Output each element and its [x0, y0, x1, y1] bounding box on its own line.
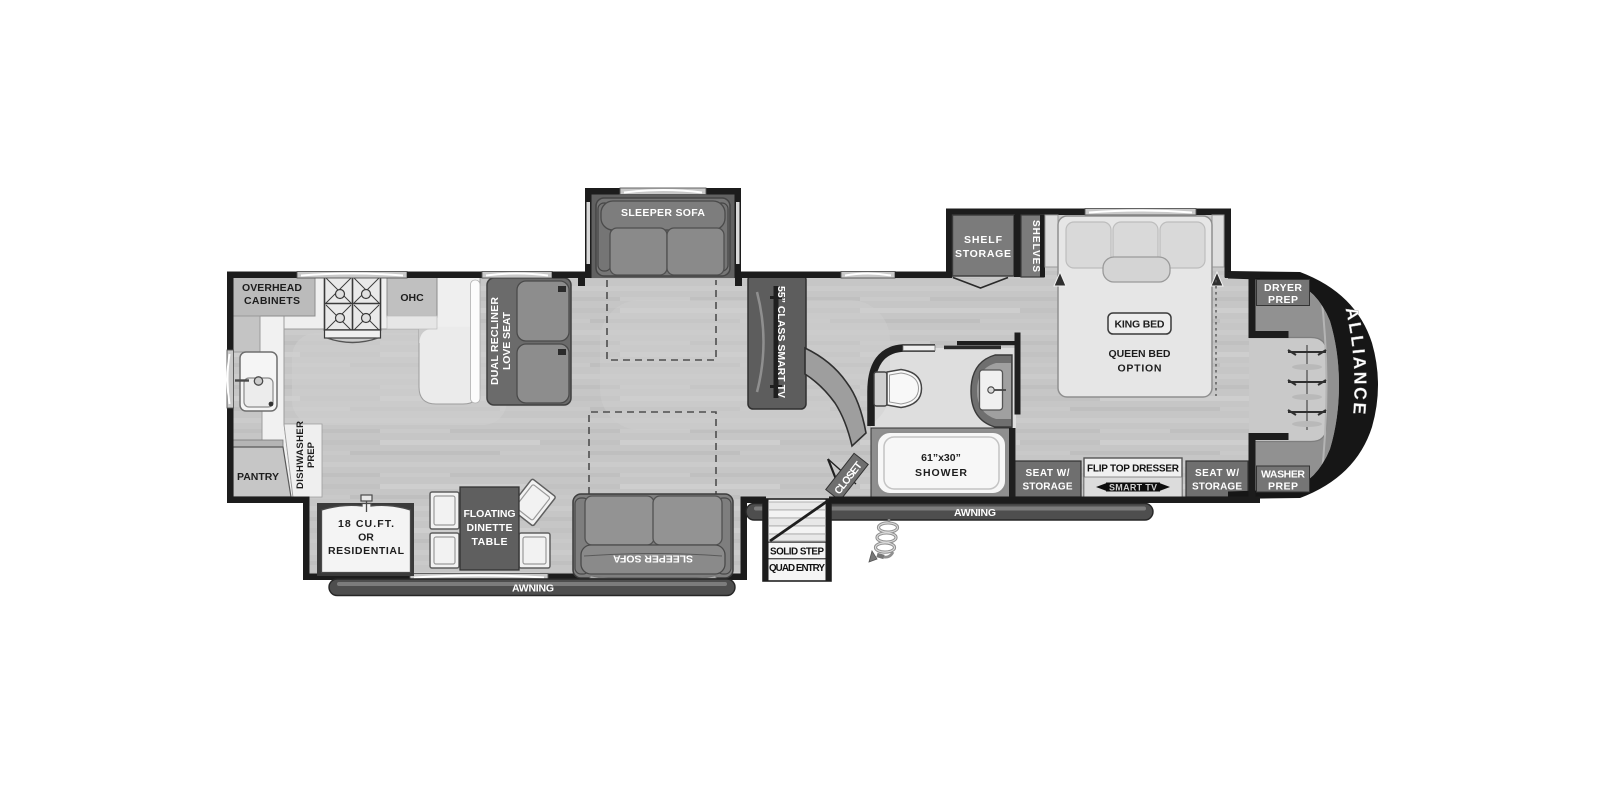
svg-text:CABINETS: CABINETS [244, 295, 300, 307]
svg-text:QUAD ENTRY: QUAD ENTRY [769, 563, 825, 574]
svg-text:18 CU.FT.: 18 CU.FT. [338, 518, 394, 530]
svg-text:SHELVES: SHELVES [1030, 220, 1041, 272]
svg-text:KING BED: KING BED [1115, 319, 1165, 331]
svg-text:QUEEN BED: QUEEN BED [1109, 348, 1171, 360]
svg-text:55” CLASS SMART TV: 55” CLASS SMART TV [775, 286, 787, 398]
svg-text:DRYER: DRYER [1264, 282, 1302, 294]
svg-text:STORAGE: STORAGE [955, 248, 1011, 260]
svg-text:SEAT W/: SEAT W/ [1195, 468, 1239, 479]
svg-text:PREP: PREP [306, 441, 317, 468]
svg-text:DISHWASHER: DISHWASHER [295, 421, 306, 489]
svg-text:SHOWER: SHOWER [915, 467, 967, 479]
svg-text:SEAT W/: SEAT W/ [1026, 468, 1070, 479]
svg-text:OHC: OHC [400, 292, 424, 304]
svg-text:TABLE: TABLE [472, 536, 508, 548]
svg-text:PREP: PREP [1268, 481, 1298, 493]
svg-text:FLIP TOP DRESSER: FLIP TOP DRESSER [1087, 464, 1180, 475]
svg-text:AWNING: AWNING [512, 583, 554, 595]
svg-text:DUAL RECLINER: DUAL RECLINER [489, 297, 501, 385]
svg-text:DINETTE: DINETTE [467, 522, 513, 534]
svg-text:SOLID STEP: SOLID STEP [770, 547, 824, 558]
svg-text:PREP: PREP [1268, 294, 1298, 306]
svg-text:STORAGE: STORAGE [1023, 482, 1073, 493]
svg-text:FLOATING: FLOATING [464, 508, 516, 520]
svg-text:AWNING: AWNING [954, 507, 996, 519]
svg-text:STORAGE: STORAGE [1192, 482, 1242, 493]
svg-text:PANTRY: PANTRY [237, 471, 279, 483]
svg-text:OR: OR [358, 532, 374, 544]
svg-text:WASHER: WASHER [1261, 469, 1305, 481]
svg-text:RESIDENTIAL: RESIDENTIAL [328, 545, 405, 557]
svg-text:SLEEPER SOFA: SLEEPER SOFA [621, 207, 705, 219]
svg-text:OVERHEAD: OVERHEAD [242, 282, 302, 294]
svg-text:SMART TV: SMART TV [1109, 483, 1157, 493]
svg-text:SLEEPER SOFA: SLEEPER SOFA [613, 553, 693, 565]
svg-text:OPTION: OPTION [1118, 363, 1162, 375]
svg-text:LOVE SEAT: LOVE SEAT [501, 311, 513, 370]
svg-text:SHELF: SHELF [964, 234, 1003, 246]
svg-text:61”x30”: 61”x30” [921, 452, 961, 464]
